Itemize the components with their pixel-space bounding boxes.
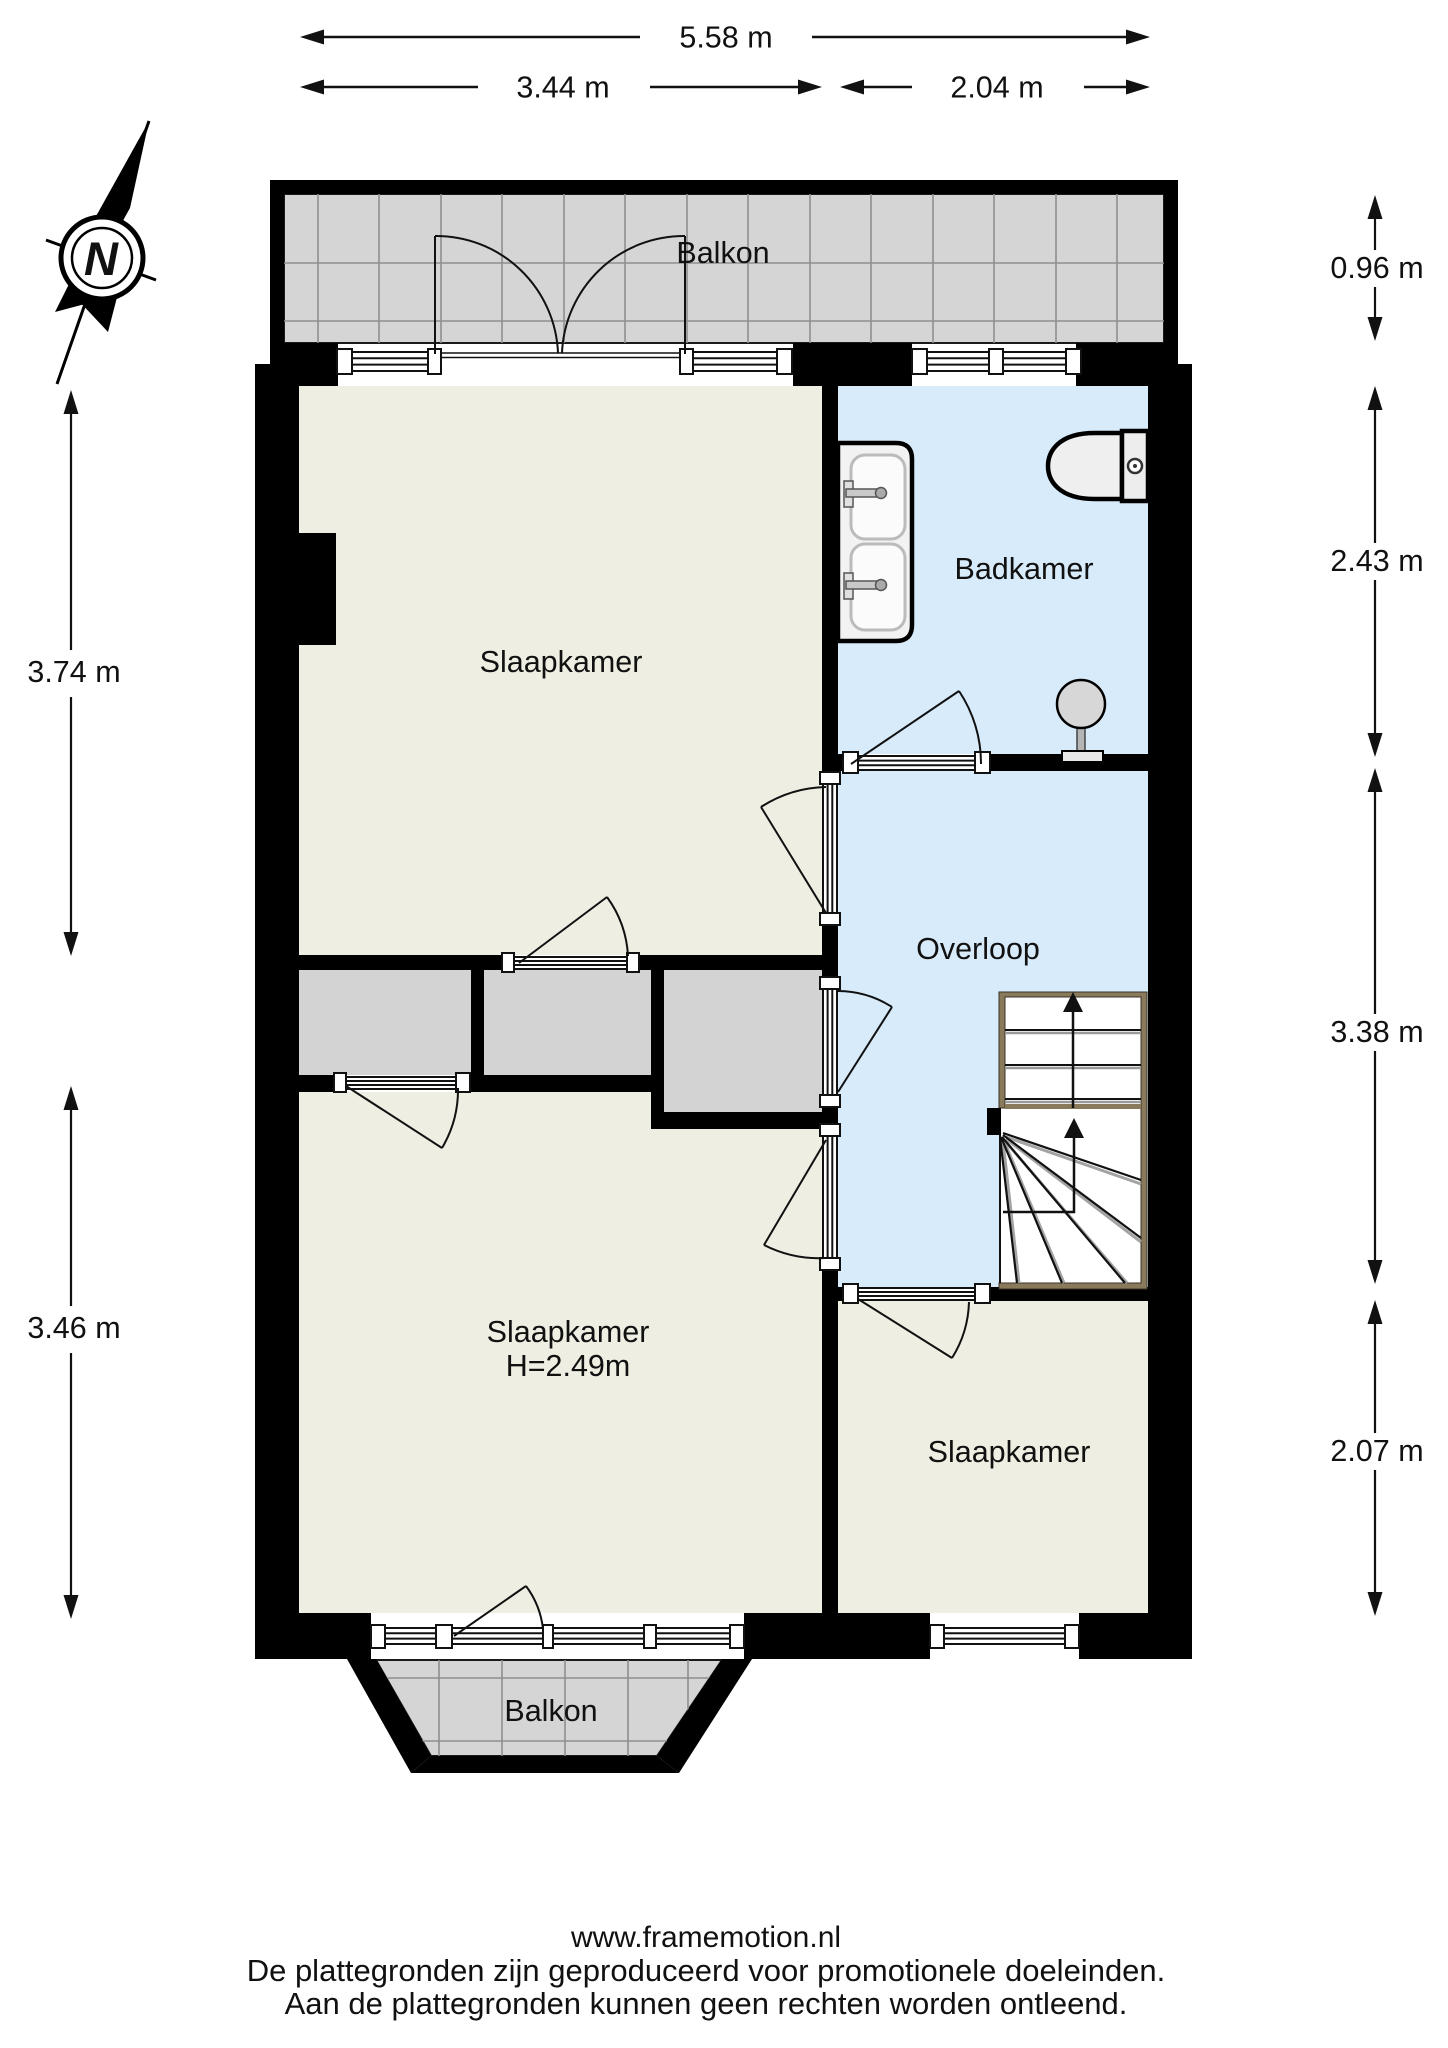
svg-text:Overloop: Overloop: [916, 932, 1040, 966]
svg-text:2.04 m: 2.04 m: [950, 71, 1043, 105]
svg-text:N: N: [84, 232, 119, 285]
svg-text:Badkamer: Badkamer: [954, 552, 1093, 586]
svg-text:Aan de plattegronden kunnen ge: Aan de plattegronden kunnen geen rechten…: [285, 1986, 1128, 2021]
svg-text:3.38 m: 3.38 m: [1330, 1015, 1423, 1049]
svg-text:www.framemotion.nl: www.framemotion.nl: [570, 1921, 841, 1954]
svg-text:3.46 m: 3.46 m: [27, 1311, 120, 1345]
svg-text:Balkon: Balkon: [676, 236, 769, 270]
svg-text:3.44 m: 3.44 m: [516, 71, 609, 105]
svg-text:2.43 m: 2.43 m: [1330, 544, 1423, 578]
svg-text:5.58 m: 5.58 m: [679, 21, 772, 55]
svg-text:Slaapkamer: Slaapkamer: [928, 1435, 1091, 1469]
svg-text:2.07 m: 2.07 m: [1330, 1434, 1423, 1468]
svg-text:Balkon: Balkon: [504, 1694, 597, 1728]
svg-text:H=2.49m: H=2.49m: [506, 1349, 631, 1383]
svg-text:De plattegronden zijn geproduc: De plattegronden zijn geproduceerd voor …: [247, 1953, 1166, 1988]
svg-text:Slaapkamer: Slaapkamer: [487, 1315, 650, 1349]
svg-text:3.74 m: 3.74 m: [27, 655, 120, 689]
svg-text:Slaapkamer: Slaapkamer: [480, 645, 643, 679]
svg-text:0.96 m: 0.96 m: [1330, 251, 1423, 285]
